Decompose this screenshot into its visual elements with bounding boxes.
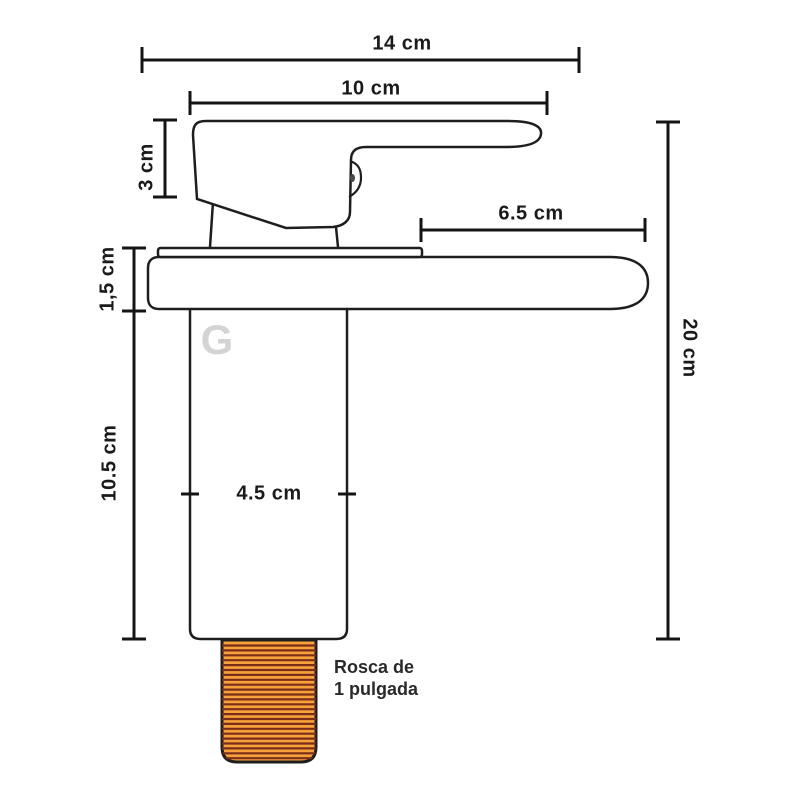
faucet-dimension-diagram: G 14 cm 10 cm 3 cm 6.5 cm 1,5 cm 10.5 cm…	[0, 0, 800, 800]
dim-label-handle-length: 10 cm	[341, 78, 400, 101]
dim-label-body-width: 4.5 cm	[236, 483, 301, 506]
dim-label-handle-height: 3 cm	[136, 143, 159, 191]
deck-plate	[158, 248, 422, 257]
thread-section	[221, 640, 317, 762]
handle	[193, 121, 541, 228]
thread-annotation: Rosca de 1 pulgada	[334, 656, 418, 700]
handle-pivot-dot	[350, 174, 355, 182]
dim-label-deck-thickness: 1,5 cm	[97, 246, 120, 311]
dim-label-overall-width: 14 cm	[372, 33, 431, 56]
thread-annotation-line1: Rosca de	[334, 656, 418, 678]
brand-logo-watermark: G	[201, 316, 234, 364]
thread-annotation-line2: 1 pulgada	[334, 678, 418, 700]
spout	[148, 257, 648, 309]
dim-label-overall-height: 20 cm	[678, 318, 701, 377]
dim-label-body-height: 10.5 cm	[99, 425, 122, 502]
dim-label-spout-reach: 6.5 cm	[498, 203, 563, 226]
